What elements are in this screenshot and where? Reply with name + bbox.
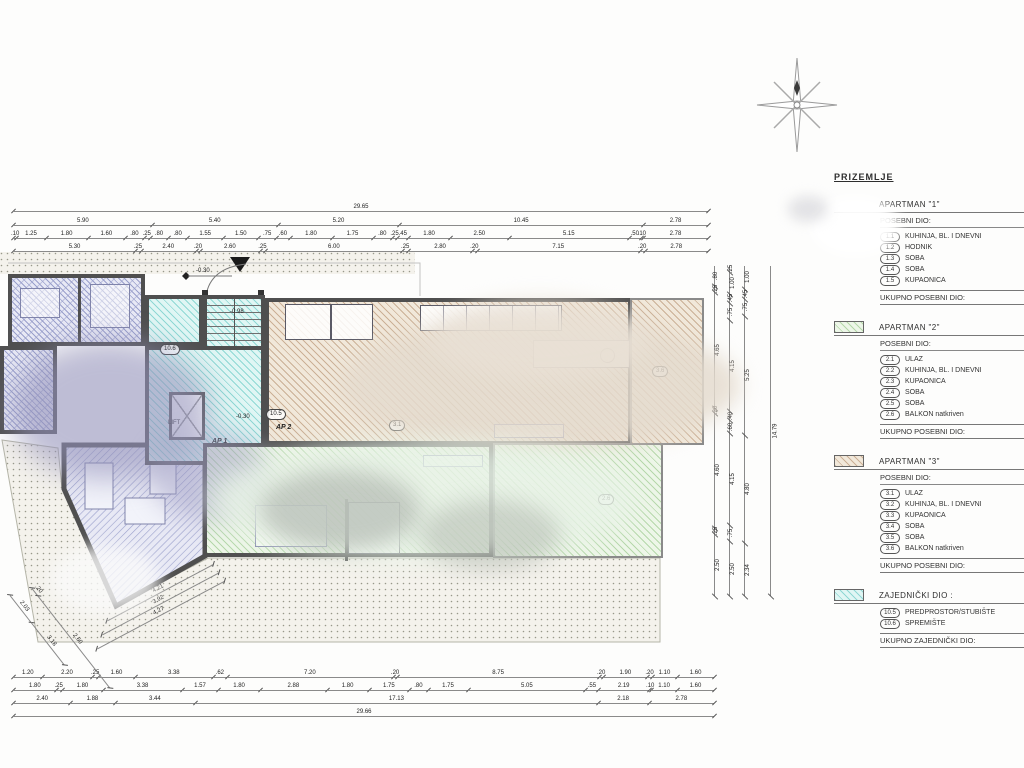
dimension-segment: 1.75 — [428, 681, 469, 691]
kitchen-island — [533, 340, 630, 368]
ap1-label: AP 1 — [212, 438, 227, 445]
dimension-value: 2.50 — [715, 559, 721, 571]
dimension-segment: 1.80 — [218, 681, 260, 691]
dimension-value: 2.40 — [36, 696, 48, 702]
dimension-value: 1.00 — [730, 277, 736, 289]
dimension-segment: 5.25 — [745, 316, 754, 435]
legend-header: APARTMAN "3" — [879, 457, 940, 466]
room-number: 2.1 — [880, 355, 900, 365]
dimension-segment: 2.20 — [42, 668, 93, 678]
dimension-value: 3.38 — [137, 683, 149, 689]
dimension-chain: 1.80.251.803.381.571.802.881.801.75.801.… — [14, 681, 714, 690]
dimension-value: 2.60 — [224, 244, 236, 250]
room-name: SOBA — [905, 523, 924, 530]
room-name: KUPAONICA — [905, 378, 946, 385]
dimension-segment: 1.80 — [46, 229, 88, 239]
dimension-segment: 8.75 — [397, 668, 598, 678]
dimension-chain: 2.401.883.4417.132.182.78 — [14, 694, 714, 703]
dimension-segment: .62 — [213, 668, 227, 678]
dimension-value: .80 — [155, 231, 163, 237]
room-name: SOBA — [905, 266, 924, 273]
dimension-value: 2.78 — [670, 218, 682, 224]
legend-row: 3.2KUHINJA, BL. I DNEVNI — [880, 499, 1024, 510]
room-number: 3.2 — [880, 500, 900, 510]
furniture — [125, 498, 165, 524]
room-name: PREDPROSTOR/STUBIŠTE — [905, 609, 995, 616]
dimension-chain: 5.905.405.2010.452.78 — [14, 216, 708, 225]
furniture — [423, 455, 483, 467]
dimension-value: 7.20 — [304, 670, 316, 676]
room-number: 3.6 — [880, 544, 900, 554]
legend-subheader: POSEBNI DIO: — [880, 216, 1024, 228]
room-name: KUPAONICA — [905, 277, 946, 284]
dimension-segment: .60 — [730, 420, 739, 433]
dimension-segment: 1.88 — [70, 694, 114, 704]
dimension-segment: 2.50 — [715, 534, 724, 596]
room-label-10-5: 10.5 — [266, 409, 286, 420]
dimension-segment: 2.50 — [450, 229, 508, 239]
legend-header: APARTMAN "1" — [879, 200, 940, 209]
dimension-segment: .60 — [276, 229, 290, 239]
dimension-value: 2.78 — [676, 696, 688, 702]
dimension-value: 7.15 — [552, 244, 564, 250]
legend-row: 10.5PREDPROSTOR/STUBIŠTE — [880, 607, 1024, 618]
dimension-value: 1.75 — [383, 683, 395, 689]
room-number: 1.2 — [880, 243, 900, 253]
dimension-chain: 29.66 — [14, 707, 714, 716]
dimension-value: 17.13 — [389, 696, 404, 702]
dimension-value: 1.55 — [199, 231, 211, 237]
furniture — [255, 505, 327, 547]
dimension-segment: 2.78 — [645, 242, 709, 252]
legend-row: 2.1ULAZ — [880, 354, 1024, 365]
dimension-value: .80 — [713, 272, 719, 280]
legend-row: 3.5SOBA — [880, 532, 1024, 543]
dimension-segment: 3.38 — [135, 668, 213, 678]
dimension-segment: 3.44 — [115, 694, 196, 704]
legend-row: 1.5KUPAONICA — [880, 275, 1024, 286]
legend-row: 3.4SOBA — [880, 521, 1024, 532]
legend-section: APARTMAN "2"POSEBNI DIO:2.1ULAZ2.2KUHINJ… — [834, 321, 1024, 439]
room-name: SOBA — [905, 400, 924, 407]
dimension-value: 4.80 — [745, 483, 751, 495]
dimension-segment: 1.80 — [408, 229, 450, 239]
dimension-segment: 2.19 — [598, 681, 649, 691]
furniture — [20, 288, 60, 318]
furniture — [494, 424, 564, 438]
lift-shaft — [169, 392, 205, 440]
lift-label: LIFT — [168, 420, 180, 426]
dimension-value: 5.15 — [563, 231, 575, 237]
apartment3-living-area — [265, 298, 632, 445]
dimension-value: 2.40 — [162, 244, 174, 250]
legend-total: UKUPNO POSEBNI DIO: — [880, 558, 1024, 573]
room-name: BALKON natkriven — [905, 545, 964, 552]
dimension-segment: 2.40 — [14, 694, 70, 704]
dimension-segment: 1.80 — [62, 681, 104, 691]
legend-header: APARTMAN "2" — [879, 323, 940, 332]
dimension-chain: 5.30.252.40.202.60.256.00.252.80.207.15.… — [14, 242, 708, 251]
dimension-segment: 1.80 — [290, 229, 332, 239]
dimension-value: 5.90 — [77, 218, 89, 224]
room-number: 2.4 — [880, 388, 900, 398]
room-label-2-6: 2.6 — [598, 494, 614, 505]
dimension-segment: .80 — [373, 229, 392, 239]
dimension-value: 5.25 — [745, 369, 751, 381]
dimension-value: 6.00 — [328, 244, 340, 250]
room-name: SOBA — [905, 389, 924, 396]
legend-section: APARTMAN "1"POSEBNI DIO:1.1KUHINJA, BL. … — [834, 198, 1024, 305]
dimension-segment: 1.57 — [182, 681, 218, 691]
apartment1-upper-rooms — [8, 274, 145, 346]
dimension-segment: 1.10 — [651, 681, 677, 691]
dimension-segment: 2.18 — [598, 694, 649, 704]
dimension-segment: 7.20 — [227, 668, 393, 678]
room-name: KUHINJA, BL. I DNEVNI — [905, 367, 982, 374]
dimension-segment: 29.66 — [14, 707, 714, 717]
room-number: 1.3 — [880, 254, 900, 264]
dimension-segment: 6.00 — [265, 242, 402, 252]
dimension-value: .75 — [743, 303, 749, 311]
dimension-value: 1.80 — [342, 683, 354, 689]
dimension-value: 1.10 — [659, 670, 671, 676]
dimension-value: 1.60 — [101, 231, 113, 237]
dimension-value: 1.88 — [87, 696, 99, 702]
apartment2-bathroom — [348, 502, 400, 554]
interior-wall — [330, 305, 332, 339]
dimension-segment: 1.75 — [332, 229, 373, 239]
dimension-value: 1.60 — [690, 683, 702, 689]
room-number: 2.3 — [880, 377, 900, 387]
room-label-3-6: 3.6 — [652, 366, 668, 377]
legend-subheader: POSEBNI DIO: — [880, 339, 1024, 351]
dimension-value: .80 — [414, 683, 422, 689]
common-storage-room — [145, 295, 203, 346]
dimension-value: 5.05 — [521, 683, 533, 689]
dimension-value: 5.40 — [209, 218, 221, 224]
dimension-segment: .55 — [585, 681, 598, 691]
room-number: 1.1 — [880, 232, 900, 242]
legend-row: 3.3KUPAONICA — [880, 510, 1024, 521]
legend-row: 1.1KUHINJA, BL. I DNEVNI — [880, 231, 1024, 242]
dimension-value: 4.15 — [730, 360, 736, 372]
dimension-value: .60 — [279, 231, 287, 237]
legend-row: 1.4SOBA — [880, 264, 1024, 275]
dimension-chain: 14.79 — [770, 266, 780, 596]
legend-row: 2.2KUHINJA, BL. I DNEVNI — [880, 365, 1024, 376]
legend-total: UKUPNO ZAJEDNIČKI DIO: — [880, 633, 1024, 648]
dimension-value: .40 — [728, 411, 734, 419]
dimension-value: 4.15 — [730, 473, 736, 485]
dimension-value: 14.79 — [773, 423, 779, 438]
dimension-segment: 5.30 — [14, 242, 135, 252]
room-name: ULAZ — [905, 356, 923, 363]
room-number: 1.4 — [880, 265, 900, 275]
dimension-segment: 2.80 — [408, 242, 472, 252]
dimension-segment: 1.20 — [14, 668, 42, 678]
dimension-segment: .75 — [730, 525, 739, 542]
dimension-segment: 2.78 — [649, 694, 714, 704]
dimension-segment: 1.25 — [16, 229, 45, 239]
legend-row: 2.4SOBA — [880, 387, 1024, 398]
dimension-segment: .75 — [730, 303, 739, 320]
dimension-segment: .75 — [745, 299, 754, 316]
room-number: 2.5 — [880, 399, 900, 409]
dimension-segment: .45 — [730, 294, 739, 304]
dimension-value: 1.80 — [61, 231, 73, 237]
apartment2-balcony — [493, 443, 663, 558]
legend-row: 2.6BALKON natkriven — [880, 409, 1024, 420]
dimension-value: 1.90 — [620, 670, 632, 676]
dimension-value: .55 — [588, 683, 596, 689]
dimension-segment: 4.65 — [715, 292, 724, 408]
dimension-value: 2.78 — [670, 244, 682, 250]
dimension-segment: 5.05 — [468, 681, 585, 691]
room-name: KUHINJA, BL. I DNEVNI — [905, 233, 982, 240]
room-name: SOBA — [905, 255, 924, 262]
ap2-label: AP 2 — [276, 424, 291, 431]
dimension-chain: 1.00.45.755.254.802.34 — [744, 266, 754, 596]
dimension-value: .80 — [378, 231, 386, 237]
dimension-segment: 4.80 — [745, 435, 754, 544]
dimension-value: 8.75 — [492, 670, 504, 676]
dimension-segment: 2.78 — [643, 216, 708, 226]
dimension-chain: .251.00.45.754.15.40.604.15.752.50 — [729, 266, 739, 596]
floor-plan-sheet: 10.6 10.5 3.1 3.6 2.6 LIFT AP 2 AP 1 -0.… — [0, 0, 1024, 768]
legend-section: APARTMAN "3"POSEBNI DIO:3.1ULAZ3.2KUHINJ… — [834, 455, 1024, 573]
room-number: 10.5 — [880, 608, 900, 618]
dimension-segment: 7.15 — [477, 242, 640, 252]
legend-header-row: APARTMAN "2" — [834, 321, 1024, 336]
dimension-value: 5.20 — [333, 218, 345, 224]
furniture — [85, 463, 113, 509]
dimension-value: .45 — [728, 294, 734, 302]
legend-sections: APARTMAN "1"POSEBNI DIO:1.1KUHINJA, BL. … — [834, 198, 1024, 648]
dimension-segment: 29.65 — [14, 202, 708, 212]
dimension-segment: 1.60 — [677, 668, 714, 678]
dimension-value: 1.60 — [690, 670, 702, 676]
dimension-segment: 1.60 — [88, 229, 125, 239]
room-name: SPREMIŠTE — [905, 620, 945, 627]
kitchen-counter — [420, 305, 562, 331]
level-mark-entry: -0.30 — [196, 268, 210, 274]
dimension-segment: .75 — [258, 229, 276, 239]
legend-header-row: ZAJEDNIČKI DIO : — [834, 589, 1024, 604]
furniture — [90, 284, 130, 328]
dimension-segment: 17.13 — [195, 694, 597, 704]
dimension-value: 2.50 — [473, 231, 485, 237]
dimension-segment: .45 — [397, 229, 408, 239]
dimension-value: .45 — [743, 290, 749, 298]
sink-icon — [600, 348, 615, 363]
dimension-value: 4.65 — [715, 344, 721, 356]
dimension-segment: 5.40 — [152, 216, 278, 226]
legend-row: 1.2HODNIK — [880, 242, 1024, 253]
dimension-chain: 1.202.20.251.603.38.627.20.208.75.201.90… — [14, 668, 714, 677]
dimension-value: 1.75 — [347, 231, 359, 237]
legend-row: 3.1ULAZ — [880, 488, 1024, 499]
dimension-value: .62 — [216, 670, 224, 676]
room-label-3-1: 3.1 — [389, 420, 405, 431]
dimension-value: 1.00 — [745, 271, 751, 283]
dimension-value: 5.30 — [69, 244, 81, 250]
dimension-value: 2.78 — [670, 231, 682, 237]
dimension-value: 1.20 — [22, 670, 34, 676]
dimension-segment: 1.50 — [223, 229, 258, 239]
dimension-segment: 4.15 — [730, 433, 739, 524]
apartment2-rooms — [203, 443, 493, 557]
apartment1-side-room — [0, 346, 57, 434]
dimension-value: .60 — [728, 422, 734, 430]
dimension-value: 3.44 — [149, 696, 161, 702]
dimension-segment: 2.34 — [745, 543, 754, 596]
dimension-segment: .80 — [409, 681, 428, 691]
interior-wall — [78, 278, 81, 342]
dimension-value: 1.80 — [233, 683, 245, 689]
dimension-segment: .80 — [125, 229, 144, 239]
dimension-chain: 29.65 — [14, 202, 708, 211]
dimension-segment: 5.20 — [278, 216, 399, 226]
room-number: 3.3 — [880, 511, 900, 521]
dimension-value: .75 — [263, 231, 271, 237]
room-label-10-6: 10.6 — [160, 344, 180, 355]
dimension-value: 2.80 — [434, 244, 446, 250]
dimension-segment: 5.90 — [14, 216, 152, 226]
legend-total: UKUPNO POSEBNI DIO: — [880, 290, 1024, 305]
dimension-segment: 1.60 — [677, 681, 714, 691]
dimension-segment: 1.55 — [187, 229, 223, 239]
legend-title: PRIZEMLJE — [834, 172, 1024, 182]
room-name: SOBA — [905, 534, 924, 541]
dimension-value: 4.60 — [715, 464, 721, 476]
dimension-value: 2.18 — [617, 696, 629, 702]
legend-total: UKUPNO POSEBNI DIO: — [880, 424, 1024, 439]
dimension-value: 1.50 — [235, 231, 247, 237]
dimension-segment: 1.00 — [745, 266, 754, 289]
dimension-segment: .40 — [730, 411, 739, 420]
dimension-value: .45 — [399, 231, 407, 237]
legend-swatch-tan — [834, 455, 864, 467]
furniture — [150, 460, 176, 494]
legend-row: 2.5SOBA — [880, 398, 1024, 409]
dimension-value: 2.19 — [618, 683, 630, 689]
level-mark-stair: -0.98 — [230, 309, 244, 315]
room-name: KUPAONICA — [905, 512, 946, 519]
dimension-segment: .80 — [150, 229, 169, 239]
dimension-value: .75 — [728, 307, 734, 315]
room-number: 2.6 — [880, 410, 900, 420]
dimension-segment: 4.60 — [715, 413, 724, 528]
apartment3-small-rooms — [285, 304, 373, 340]
dimension-value: 2.34 — [745, 564, 751, 576]
legend-row: 1.3SOBA — [880, 253, 1024, 264]
dimension-segment: 4.15 — [730, 320, 739, 411]
level-mark-hall: -0.30 — [236, 414, 250, 420]
dimension-value: 1.80 — [423, 231, 435, 237]
legend-row: 10.6SPREMIŠTE — [880, 618, 1024, 629]
dimension-segment: 1.90 — [603, 668, 647, 678]
legend-row: 3.6BALKON natkriven — [880, 543, 1024, 554]
dimension-segment: 2.40 — [141, 242, 196, 252]
room-name: BALKON natkriven — [905, 411, 964, 418]
dimension-value: .80 — [174, 231, 182, 237]
room-name: KUHINJA, BL. I DNEVNI — [905, 501, 982, 508]
dimension-segment: .80 — [168, 229, 187, 239]
dimension-value: 29.66 — [356, 709, 371, 715]
dimension-value: 29.65 — [353, 204, 368, 210]
room-name: HODNIK — [905, 244, 932, 251]
dimension-value: .80 — [130, 231, 138, 237]
dimension-segment: 2.60 — [200, 242, 259, 252]
dimension-value: 1.75 — [442, 683, 454, 689]
dimension-chain: .101.251.801.60.80.25.80.801.551.50.75.6… — [14, 229, 708, 238]
dimension-segment: 2.50 — [730, 541, 739, 596]
room-number: 3.5 — [880, 533, 900, 543]
legend-section: ZAJEDNIČKI DIO :10.5PREDPROSTOR/STUBIŠTE… — [834, 589, 1024, 648]
dimension-segment: 5.15 — [509, 229, 629, 239]
dimension-segment: 1.80 — [14, 681, 56, 691]
legend-row: 2.3KUPAONICA — [880, 376, 1024, 387]
room-number: 2.2 — [880, 366, 900, 376]
legend: PRIZEMLJE APARTMAN "1"POSEBNI DIO:1.1KUH… — [834, 172, 1024, 664]
room-number: 3.1 — [880, 489, 900, 499]
legend-header-row: APARTMAN "1" — [834, 198, 1024, 213]
dimension-value: 3.38 — [168, 670, 180, 676]
dimension-value: 1.25 — [25, 231, 37, 237]
dimension-value: 2.20 — [61, 670, 73, 676]
dimension-segment: .80 — [715, 266, 724, 286]
legend-header-row: APARTMAN "3" — [834, 455, 1024, 470]
dimension-value: 1.80 — [29, 683, 41, 689]
dimension-value: 2.88 — [288, 683, 300, 689]
legend-swatch-green — [834, 321, 864, 333]
dimension-chain: .80.254.65.204.60.252.50 — [714, 266, 724, 596]
dimension-segment: 2.88 — [260, 681, 327, 691]
legend-swatch-cyan — [834, 589, 864, 601]
dimension-value: 1.57 — [194, 683, 206, 689]
dimension-segment: 14.79 — [771, 266, 780, 596]
room-name: ULAZ — [905, 490, 923, 497]
dimension-segment: 1.80 — [327, 681, 369, 691]
legend-subheader: POSEBNI DIO: — [880, 473, 1024, 485]
dimension-segment: 2.78 — [643, 229, 708, 239]
dimension-value: 2.50 — [730, 563, 736, 575]
dimension-value: 1.80 — [77, 683, 89, 689]
room-number: 10.6 — [880, 619, 900, 629]
room-number: 1.5 — [880, 276, 900, 286]
dimension-segment: 1.75 — [369, 681, 410, 691]
dimension-value: 1.80 — [305, 231, 317, 237]
dimension-segment: 1.00 — [730, 272, 739, 294]
dimension-segment: 1.10 — [652, 668, 677, 678]
dimension-value: .75 — [728, 529, 734, 537]
dimension-segment: .45 — [745, 289, 754, 299]
dimension-value: 10.45 — [514, 218, 529, 224]
legend-header: ZAJEDNIČKI DIO : — [879, 591, 953, 600]
dimension-value: 1.10 — [658, 683, 670, 689]
room-number: 3.4 — [880, 522, 900, 532]
dimension-segment: 10.45 — [399, 216, 643, 226]
compass-rose-icon — [757, 58, 837, 152]
